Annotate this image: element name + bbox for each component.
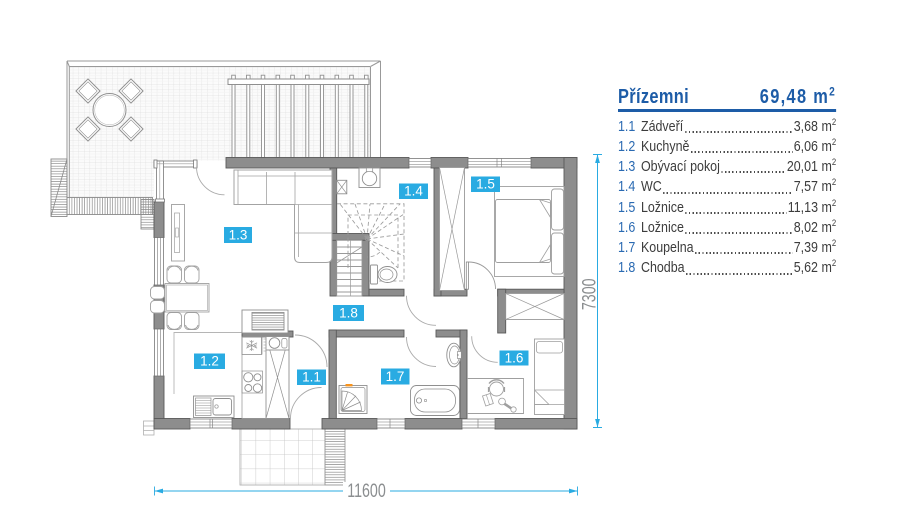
- svg-text:1.8: 1.8: [339, 306, 358, 321]
- svg-text:1.3: 1.3: [229, 228, 248, 243]
- svg-text:7300: 7300: [579, 278, 600, 310]
- svg-text:1.2: 1.2: [200, 354, 219, 369]
- svg-text:1.5: 1.5: [476, 177, 495, 192]
- svg-text:1.4: 1.4: [404, 184, 423, 199]
- svg-text:1.1: 1.1: [302, 370, 321, 385]
- svg-text:1.7: 1.7: [386, 369, 405, 384]
- svg-text:1.6: 1.6: [505, 351, 524, 366]
- svg-text:11600: 11600: [347, 480, 386, 501]
